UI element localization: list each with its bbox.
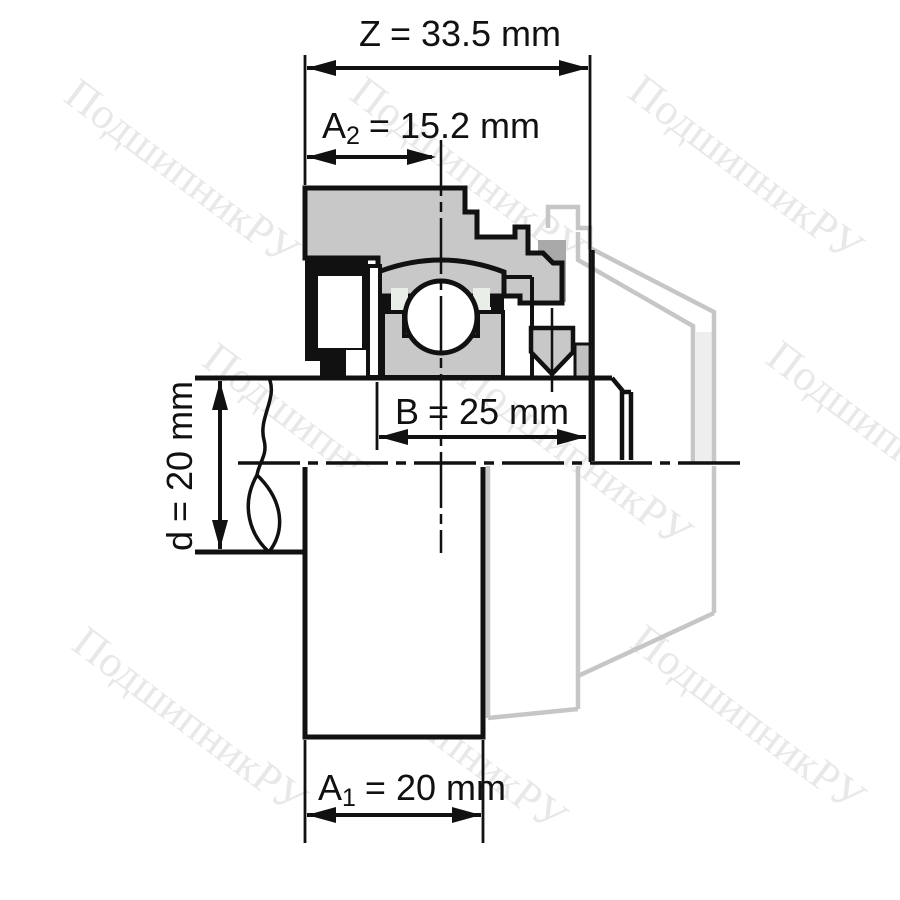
- watermark-text: ПодшипникРУ: [56, 69, 309, 276]
- collar-step: [346, 350, 368, 377]
- arrowhead-right: [559, 60, 588, 76]
- dimension-d: d= 20 mm: [159, 378, 242, 552]
- collar-window: [318, 276, 362, 348]
- dimension-label-a1: A1= 20 mm: [318, 767, 506, 812]
- collar-notch: [305, 361, 320, 377]
- collar-back-face: [612, 378, 631, 460]
- arrowhead-left: [307, 149, 336, 165]
- arrowhead-bottom: [212, 520, 228, 549]
- watermark-text: ПодшипникРУ: [64, 617, 317, 824]
- watermark-text: ПодшипникРУ: [758, 331, 900, 538]
- arrowhead-right: [452, 807, 481, 823]
- dimension-a2: A2= 15.2 mm: [307, 105, 540, 165]
- watermark-text: ПодшипникРУ: [622, 615, 875, 822]
- dimension-label-z: Z= 33.5 mm: [359, 13, 561, 54]
- collar-lower-half: [305, 467, 483, 737]
- arrowhead-left: [307, 807, 336, 823]
- ghost-lower-bottom-edge: [488, 709, 578, 718]
- ghost-inner-edge: [578, 232, 693, 462]
- drawing-canvas: ПодшипникРУ ПодшипникРУ ПодшипникРУ Подш…: [0, 0, 900, 900]
- dimension-label-d: d= 20 mm: [159, 381, 200, 551]
- arrowhead-left: [307, 60, 336, 76]
- flinger: [368, 266, 380, 377]
- bearing-technical-drawing: ПодшипникРУ ПодшипникРУ ПодшипникРУ Подш…: [0, 0, 900, 900]
- ghost-bore-band: [696, 332, 714, 462]
- dimension-label-b: B= 25 mm: [395, 391, 569, 432]
- watermark-text: ПодшипникРУ: [620, 65, 873, 272]
